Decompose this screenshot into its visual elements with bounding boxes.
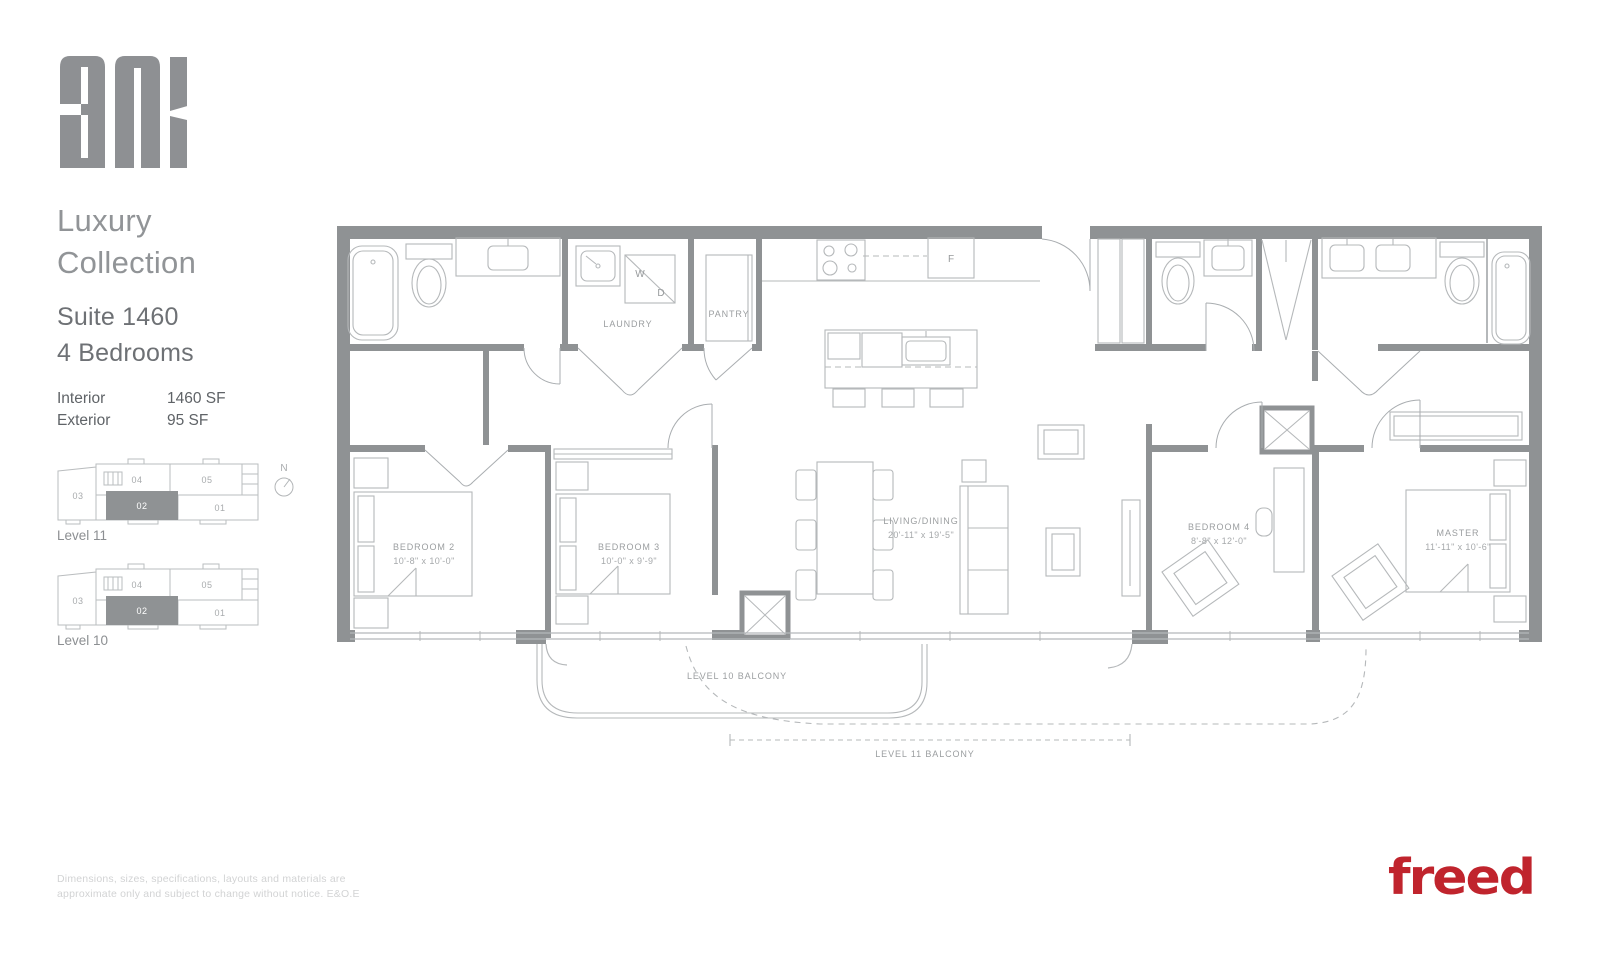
laundry-label: LAUNDRY — [603, 319, 652, 329]
living-dining-furniture — [796, 425, 1140, 614]
keyplan11-unit-03: 03 — [72, 491, 83, 501]
bedroom2-dims: 10'-8" x 10'-0" — [393, 556, 454, 566]
keyplan10-unit-02: 02 — [136, 606, 147, 616]
freed-logo: freed — [1388, 850, 1534, 907]
bedroom4-dims: 8'-8" x 12'-0" — [1191, 536, 1247, 546]
fridge-label: F — [948, 254, 954, 265]
bedroom4-label: BEDROOM 4 — [1188, 522, 1250, 532]
master-label: MASTER — [1437, 528, 1480, 538]
bedroom3-furniture — [554, 449, 672, 624]
keyplan10-unit-03: 03 — [72, 596, 83, 606]
level-10-label: Level 10 — [57, 633, 108, 648]
keyplan-level-11: 03 04 05 02 01 — [58, 459, 258, 524]
keyplan11-unit-01: 01 — [214, 503, 225, 513]
balconies — [537, 644, 1366, 746]
level-11-label: Level 11 — [57, 528, 107, 543]
keyplan10-unit-04: 04 — [131, 580, 142, 590]
north-label: N — [280, 463, 287, 474]
keyplan11-unit-02: 02 — [136, 501, 147, 511]
plan-fixtures — [348, 238, 1530, 628]
level10-balcony-label: LEVEL 10 BALCONY — [687, 671, 787, 681]
disclaimer: Dimensions, sizes, specifications, layou… — [57, 872, 360, 902]
floorplan-page: Luxury Collection Suite 1460 4 Bedrooms … — [0, 0, 1600, 971]
washer-label: W — [635, 269, 645, 280]
level11-balcony-outline — [686, 646, 1366, 724]
plan-walls — [337, 226, 1542, 644]
keyplan10-unit-05: 05 — [201, 580, 212, 590]
keyplan11-unit-04: 04 — [131, 475, 142, 485]
north-arrow-icon — [275, 478, 293, 496]
dryer-label: D — [657, 288, 664, 299]
keyplan10-unit-01: 01 — [214, 608, 225, 618]
keyplan-level-10: 03 04 05 02 01 — [58, 564, 258, 629]
disclaimer-line1: Dimensions, sizes, specifications, layou… — [57, 872, 360, 887]
master-bath-fixtures — [1322, 238, 1530, 344]
master-furniture — [1332, 460, 1526, 622]
shower-fixtures — [1262, 240, 1311, 340]
bedroom3-dims: 10'-0" x 9'-9" — [601, 556, 657, 566]
master-dims: 11'-11" x 10'-6" — [1425, 542, 1490, 552]
kitchen-fixtures — [762, 238, 1040, 407]
disclaimer-line2: approximate only and subject to change w… — [57, 887, 360, 902]
entry-closet — [1098, 239, 1144, 343]
bath1-fixtures — [348, 238, 560, 340]
level11-balcony-label: LEVEL 11 BALCONY — [875, 749, 974, 759]
pantry-label: PANTRY — [708, 309, 749, 319]
level10-balcony-outline — [537, 644, 927, 718]
bath2-fixtures — [1156, 239, 1252, 304]
keyplan11-unit-05: 05 — [201, 475, 212, 485]
pantry-fixtures — [706, 255, 752, 341]
floorplan-drawing: 03 04 05 02 01 Level 11 N — [0, 0, 1600, 971]
bedroom3-label: BEDROOM 3 — [598, 542, 660, 552]
living-dining-dims: 20'-11" x 19'-5" — [888, 530, 954, 540]
master-closet — [1390, 412, 1522, 440]
living-dining-label: LIVING/DINING — [883, 516, 958, 526]
bedroom2-label: BEDROOM 2 — [393, 542, 455, 552]
